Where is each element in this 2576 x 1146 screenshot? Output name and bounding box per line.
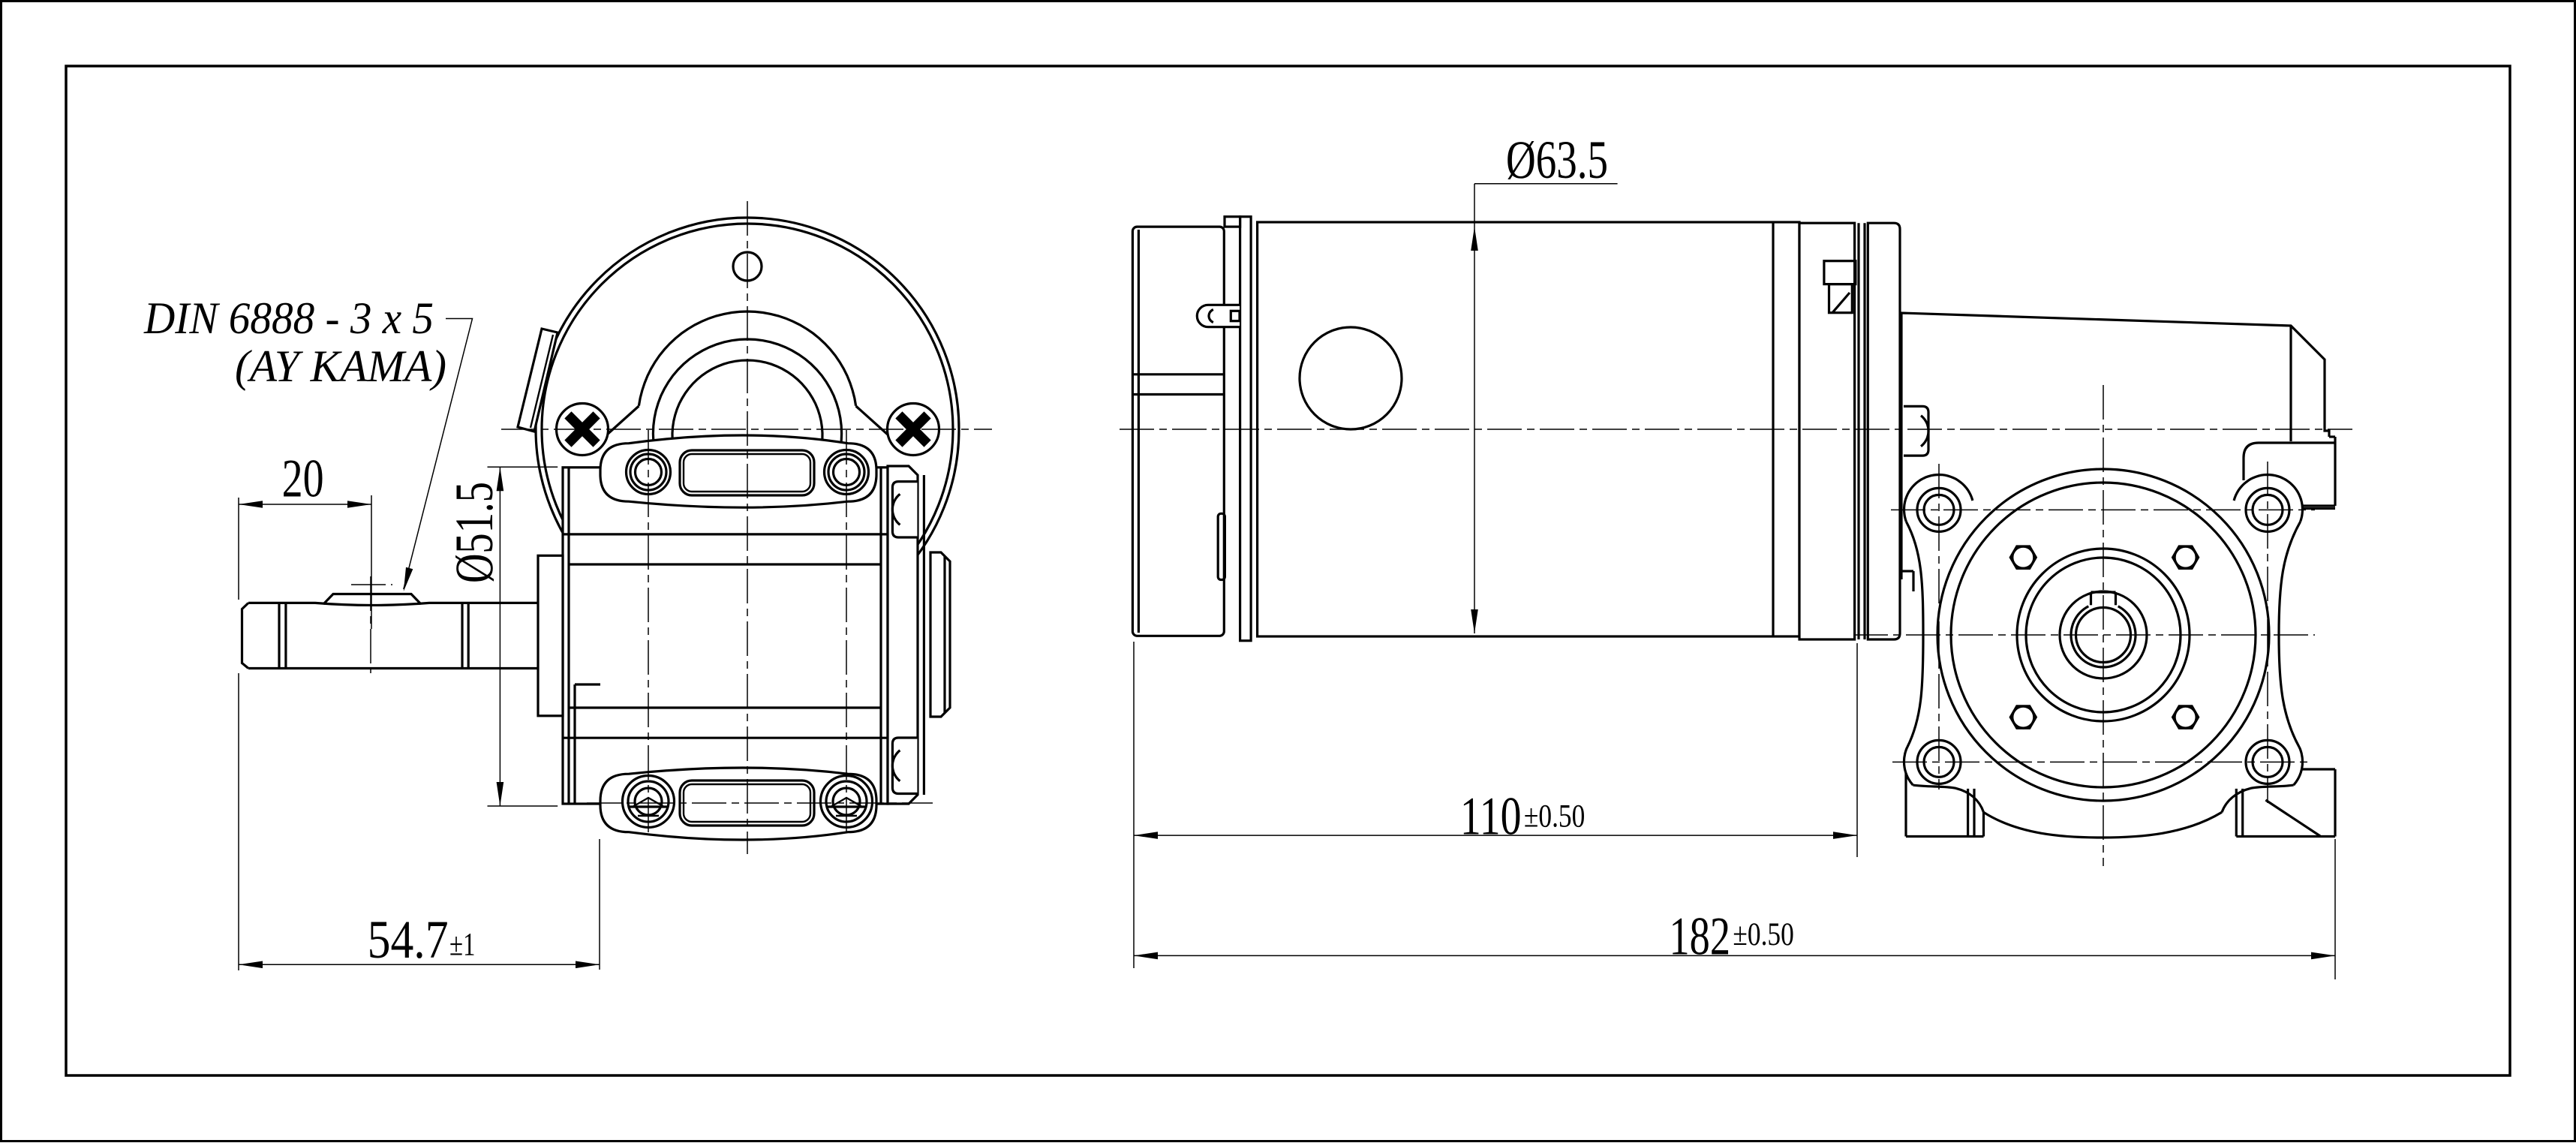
svg-text:54.7: 54.7: [368, 910, 449, 970]
svg-text:±0.50: ±0.50: [1733, 917, 1794, 952]
svg-text:20: 20: [282, 449, 324, 509]
svg-text:182: 182: [1670, 906, 1731, 966]
svg-text:±1: ±1: [449, 927, 476, 962]
svg-text:Ø63.5: Ø63.5: [1506, 130, 1608, 190]
svg-text:(AY KAMA): (AY KAMA): [235, 341, 446, 391]
svg-text:Ø51.5: Ø51.5: [444, 482, 504, 583]
svg-text:±0.50: ±0.50: [1524, 799, 1585, 835]
svg-text:DIN 6888 - 3 x 5: DIN 6888 - 3 x 5: [143, 293, 434, 343]
svg-text:110: 110: [1460, 787, 1522, 847]
